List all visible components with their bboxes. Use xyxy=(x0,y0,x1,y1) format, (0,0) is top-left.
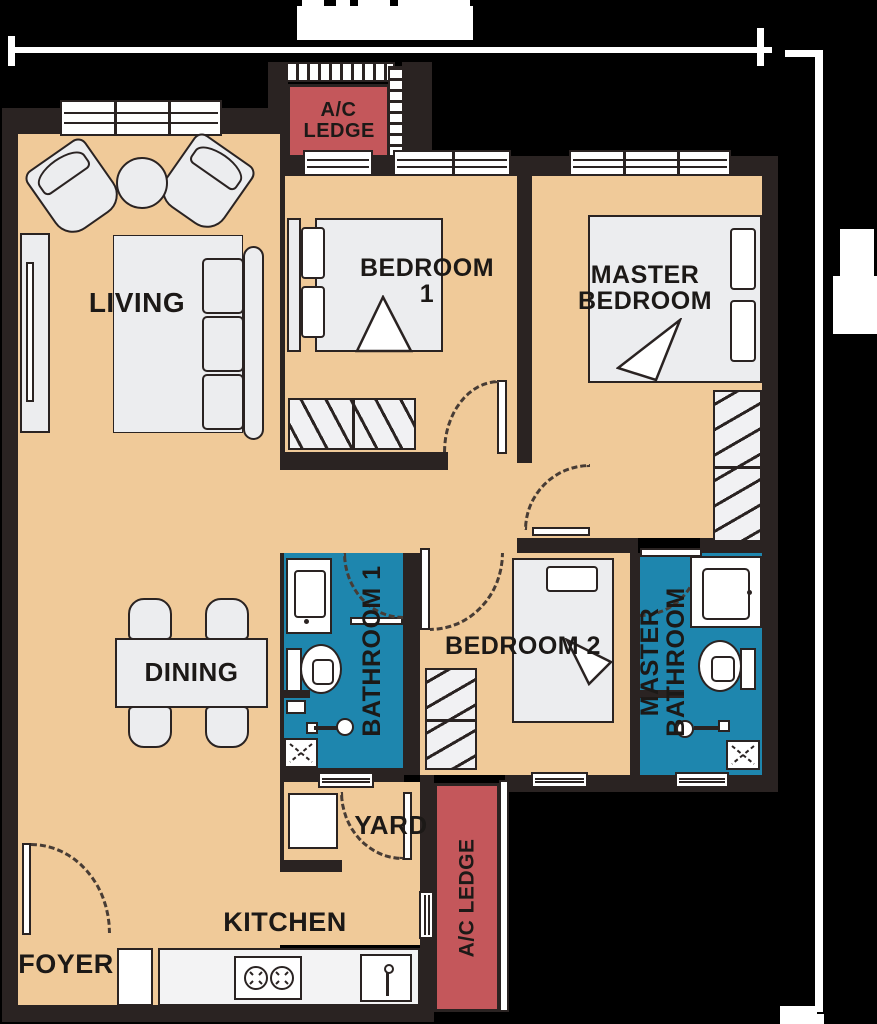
window-bedroom2 xyxy=(531,772,588,788)
cutoff-text-top-notch xyxy=(302,0,324,8)
dimension-tick-right xyxy=(757,28,764,66)
shower-partition-bathroom1 xyxy=(284,690,310,698)
dimension-tick-bottom xyxy=(780,1006,817,1014)
ac-ledge-top-label: A/C LEDGE xyxy=(304,100,374,142)
label-bedroom2: BEDROOM 2 xyxy=(428,633,618,659)
label-dining: DINING xyxy=(145,659,239,686)
floor-yard-door-gap xyxy=(342,860,420,872)
wardrobe-master-bedroom xyxy=(713,390,762,542)
label-bathroom1: BATHROOM 1 xyxy=(359,541,385,761)
dimension-line-horizontal xyxy=(12,47,772,53)
wall-bedroom1-master xyxy=(517,156,532,463)
window-living xyxy=(60,100,222,136)
bed1-pillow xyxy=(301,227,325,279)
shower-knob-master-bathroom xyxy=(718,720,730,732)
door-leaf-bedroom2 xyxy=(420,548,430,630)
sofa-cushion xyxy=(202,374,244,430)
label-bedroom1: BEDROOM 1 xyxy=(352,255,502,307)
label-kitchen: KITCHEN xyxy=(205,908,365,936)
sink-master-bathroom xyxy=(690,556,762,628)
toilet-bathroom1-bowl xyxy=(300,644,342,694)
cutoff-text-right xyxy=(833,276,877,334)
dining-chair xyxy=(205,598,249,640)
shower-head-bathroom1 xyxy=(336,718,354,736)
wall-yard-bottom xyxy=(284,860,342,872)
master-bed-fold xyxy=(616,318,682,382)
wall-outer-right xyxy=(762,156,778,792)
sofa-cushion xyxy=(202,316,244,372)
label-master-bedroom: MASTER BEDROOM xyxy=(545,262,745,314)
bed2-pillow xyxy=(546,566,598,592)
window-bedroom1-b xyxy=(393,150,511,176)
ac-ledge-top-louver-top xyxy=(283,62,395,82)
bed1-pillow xyxy=(301,286,325,338)
ac-ledge-bottom-label: A/C LEDGE xyxy=(456,838,478,957)
label-living: LIVING xyxy=(72,288,202,317)
dining-chair xyxy=(205,706,249,748)
washing-machine xyxy=(288,793,338,849)
window-master-bedroom xyxy=(569,150,731,176)
toilet-master-bathroom-tank xyxy=(740,648,756,690)
wall-master-bottom-left xyxy=(505,538,638,554)
bed1-headboard xyxy=(287,218,301,352)
wall-outer-left xyxy=(2,108,18,1020)
round-table xyxy=(116,157,168,209)
floor-bedroom2-door-gap xyxy=(420,543,505,553)
label-yard: YARD xyxy=(336,812,446,839)
floor-bedroom1-door-gap xyxy=(448,452,517,470)
wardrobe-bedroom1 xyxy=(288,398,416,450)
ac-ledge-top-louver-right xyxy=(388,66,404,160)
cutoff-text-right xyxy=(840,229,874,277)
tv-console xyxy=(20,233,50,433)
floor-plan: A/C LEDGE A/C LEDGE xyxy=(0,0,877,1024)
shower-drain-master-bathroom xyxy=(726,740,760,770)
window-bedroom1-a xyxy=(303,150,373,176)
cutoff-text-top-notch xyxy=(398,0,470,8)
label-master-bathroom: MASTER BATHROOM xyxy=(637,549,689,775)
cutoff-text-top-notch xyxy=(358,0,390,8)
label-foyer: FOYER xyxy=(10,950,122,978)
dimension-tick-top xyxy=(785,50,817,57)
window-kitchen xyxy=(419,891,434,939)
dimension-foot-block xyxy=(780,1014,824,1024)
dimension-line-vertical xyxy=(815,50,823,1012)
ac-ledge-bottom-strip xyxy=(499,780,509,1012)
door-leaf-entrance xyxy=(22,843,31,935)
sofa-back xyxy=(243,246,264,440)
sofa-cushion xyxy=(202,258,244,314)
dining-table: DINING xyxy=(115,638,268,708)
dining-chair xyxy=(128,598,172,640)
cutoff-text-top xyxy=(297,6,473,40)
toilet-master-bathroom-bowl xyxy=(698,640,742,692)
fridge xyxy=(117,948,153,1006)
shower-drain-bathroom1 xyxy=(284,738,318,768)
window-bathroom1 xyxy=(318,772,374,788)
dining-chair xyxy=(128,706,172,748)
sink-bathroom1 xyxy=(286,558,332,634)
ac-ledge-top: A/C LEDGE xyxy=(287,84,390,158)
wall-bathroom1-bedroom2 xyxy=(403,543,420,775)
wardrobe-bedroom2 xyxy=(425,668,477,770)
shower-shelf-bathroom1 xyxy=(286,700,306,714)
floor-corridor xyxy=(268,470,517,553)
cutoff-text-top-notch xyxy=(336,0,350,8)
wall-bedroom1-bottom xyxy=(268,452,448,470)
dimension-tick-left xyxy=(8,36,15,66)
kitchen-sink xyxy=(360,954,412,1002)
wall-outer-bottom xyxy=(2,1005,434,1022)
tv xyxy=(26,262,34,402)
shower-arm-master-bathroom xyxy=(694,726,720,730)
stove xyxy=(234,956,302,1000)
